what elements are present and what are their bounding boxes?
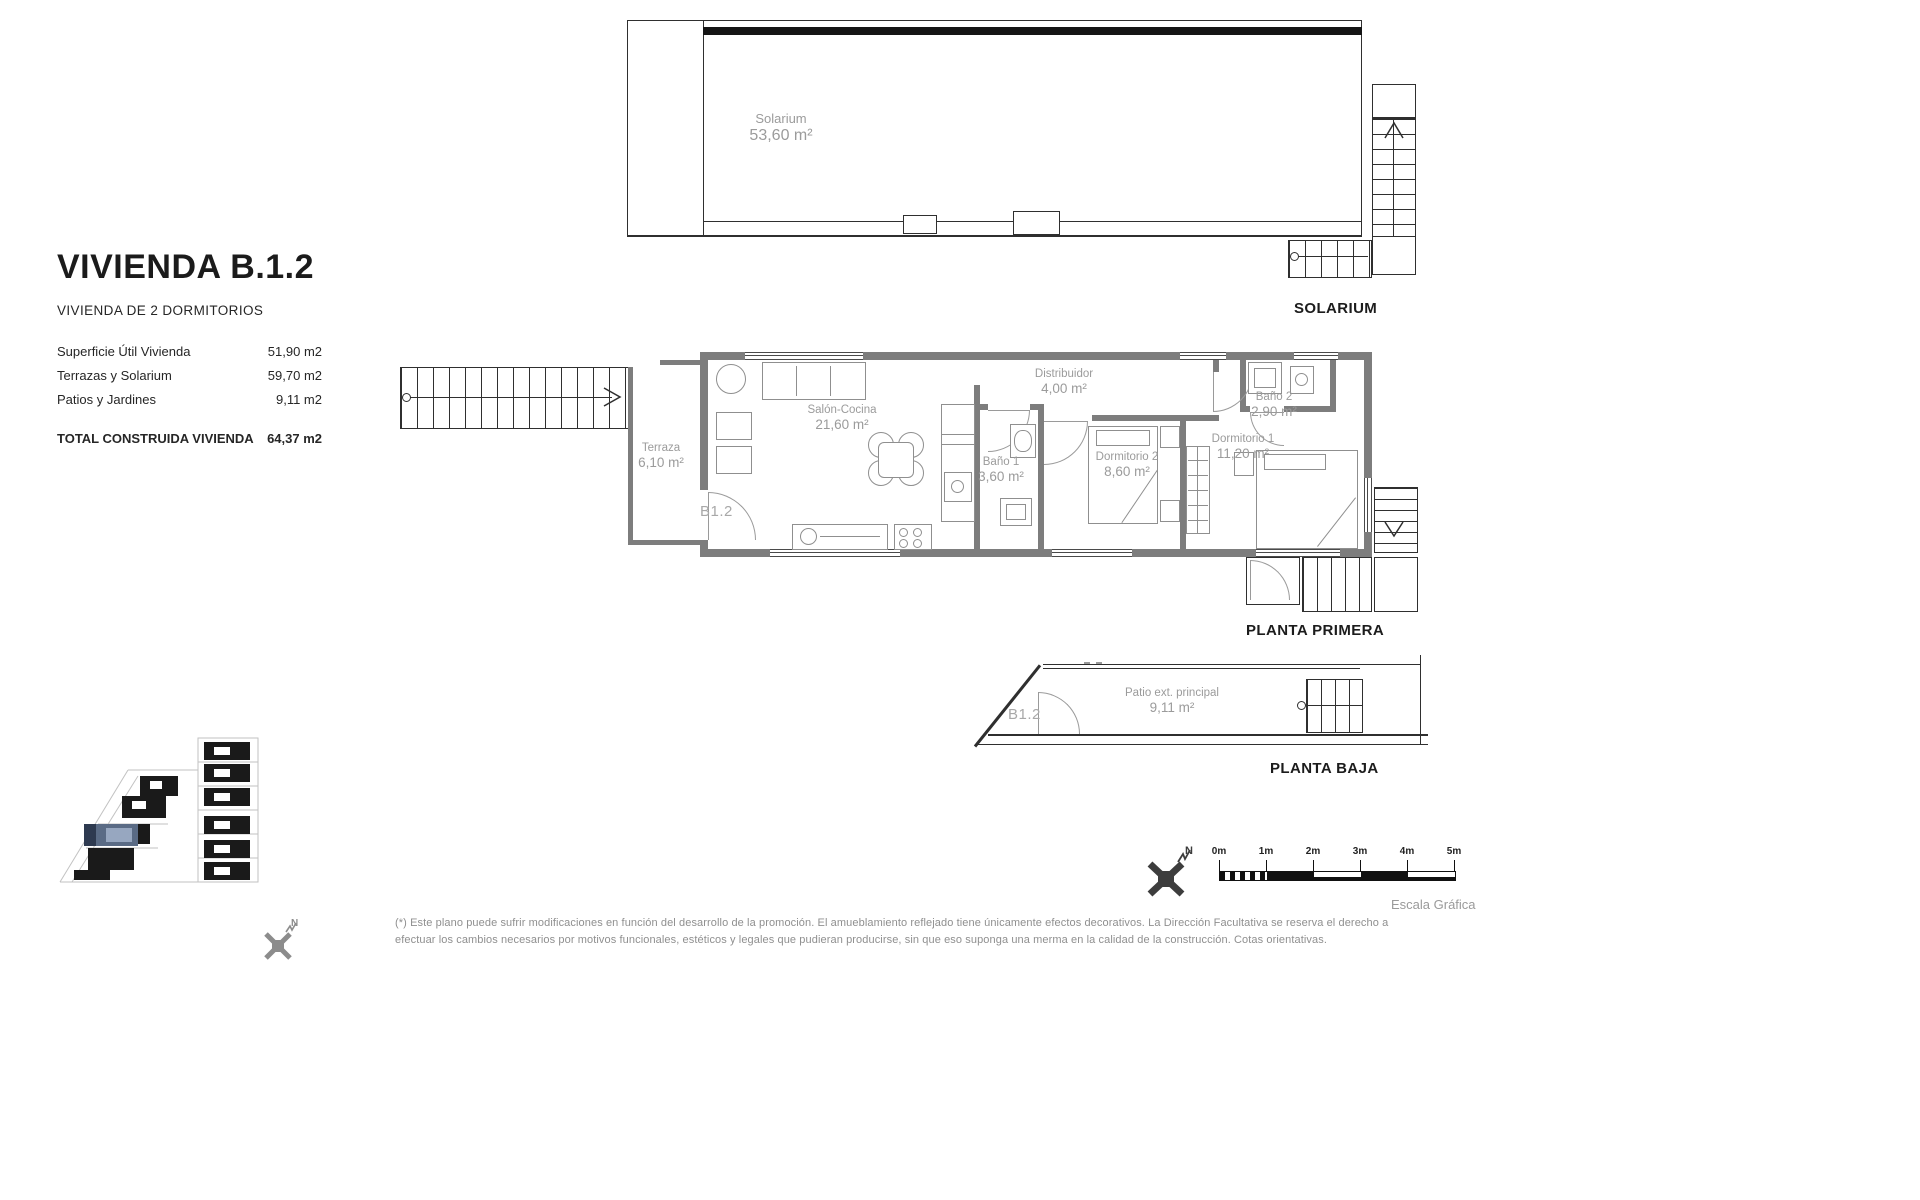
stair-start-circle (402, 393, 411, 402)
coffee-table (716, 364, 746, 394)
room-label-solarium: Solarium 53,60 m² (716, 112, 846, 145)
scale-segment (1314, 872, 1361, 880)
dimension-dot (1096, 662, 1102, 664)
room-area: 8,60 m² (1067, 464, 1187, 480)
door-arc-patio-entry (1038, 692, 1080, 734)
page-title: VIVIENDA B.1.2 (57, 248, 314, 287)
stair-centerline (1306, 705, 1363, 706)
armchair (716, 446, 752, 474)
area-row-value: 59,70 m2 (268, 368, 322, 383)
scale-tick (1313, 860, 1314, 871)
compass-rose-large: N (1142, 842, 1200, 902)
wall-segment (1330, 360, 1336, 412)
wall-segment (1213, 360, 1219, 372)
room-area: 21,60 m² (772, 417, 912, 433)
scale-tick (1360, 860, 1361, 871)
floor-plan-sheet: VIVIENDA B.1.2 VIVIENDA DE 2 DORMITORIOS… (0, 0, 1920, 1200)
room-label-terraza: Terraza 6,10 m² (628, 442, 694, 471)
toilet-bowl (1014, 430, 1032, 452)
room-area: 9,11 m² (1107, 700, 1237, 716)
hob-burner (899, 539, 908, 548)
area-row: Superficie Útil Vivienda 51,90 m2 (57, 344, 322, 359)
patio-top-line (1043, 664, 1420, 665)
window (1256, 549, 1340, 557)
patio-top-line (1043, 668, 1360, 669)
washbasin-bowl (1295, 373, 1308, 386)
site-plan-minimap (58, 736, 262, 886)
footnote-line-1: (*) Este plano puede sufrir modificacion… (395, 917, 1388, 929)
room-label-dormitorio2: Dormitorio 2 8,60 m² (1067, 451, 1187, 480)
staircase (400, 367, 630, 429)
north-label: N (291, 918, 298, 929)
stair-landing (1374, 557, 1418, 612)
room-name: Patio ext. principal (1107, 687, 1237, 700)
scale-bar-segments (1219, 871, 1456, 881)
room-name: Salón-Cocina (772, 404, 912, 417)
room-area: 11,20 m² (1183, 446, 1303, 462)
nightstand (1160, 426, 1180, 448)
room-area: 2,90 m² (1234, 404, 1314, 420)
washbasin-bowl (1006, 504, 1026, 520)
dimension-dot (1084, 662, 1090, 664)
patio-right-line (1420, 655, 1421, 745)
wall-segment (703, 27, 1362, 35)
scale-tick-label: 2m (1306, 846, 1320, 857)
patio-outer-line (975, 744, 1428, 745)
scale-tick-label: 4m (1400, 846, 1414, 857)
stair-direction-arrow (1383, 120, 1405, 140)
room-name: Dormitorio 2 (1067, 451, 1187, 464)
window (745, 352, 863, 360)
footnote-line-2: efectuar los cambios necesarios por moti… (395, 934, 1327, 946)
page-subtitle: VIVIENDA DE 2 DORMITORIOS (57, 303, 263, 318)
hob-burner (913, 539, 922, 548)
unit-entry-label: B1.2 (700, 503, 733, 520)
scale-tick (1266, 860, 1267, 871)
room-area: 4,00 m² (1000, 381, 1128, 397)
shower-tray (1254, 368, 1276, 388)
rooftop-box (903, 215, 937, 234)
staircase (1288, 240, 1372, 278)
wall-segment (700, 352, 708, 490)
scale-tick-label: 5m (1447, 846, 1461, 857)
stair-start-circle (1297, 701, 1306, 710)
total-row-label: TOTAL CONSTRUIDA VIVIENDA (57, 431, 254, 446)
nightstand (1160, 500, 1180, 522)
scale-tick (1407, 860, 1408, 871)
stair-direction-arrow (602, 386, 624, 410)
area-row-label: Patios y Jardines (57, 392, 156, 407)
room-label-patio: Patio ext. principal 9,11 m² (1107, 687, 1237, 716)
north-label: N (1185, 845, 1193, 857)
total-row: TOTAL CONSTRUIDA VIVIENDA 64,37 m2 (57, 431, 322, 446)
area-row: Terrazas y Solarium 59,70 m2 (57, 368, 322, 383)
armchair (716, 412, 752, 440)
total-row-value: 64,37 m2 (267, 431, 322, 446)
wall-segment (1092, 415, 1180, 421)
kitchen-sink-bowl (951, 480, 964, 493)
wall-segment (628, 540, 705, 545)
hob-burner (913, 528, 922, 537)
patio-bottom-wall (988, 734, 1428, 736)
window (1180, 352, 1226, 360)
unit-entry-label: B1.2 (1008, 706, 1041, 723)
staircase (1306, 679, 1363, 733)
room-label-distribuidor: Distribuidor 4,00 m² (1000, 368, 1128, 397)
wardrobe-shelf-line (1188, 475, 1208, 476)
caption-solarium: SOLARIUM (1294, 300, 1377, 317)
caption-planta-primera: PLANTA PRIMERA (1246, 622, 1384, 639)
room-name: Solarium (716, 112, 846, 127)
room-name: Baño 1 (966, 456, 1036, 469)
area-row: Patios y Jardines 9,11 m2 (57, 392, 322, 407)
wardrobe-shelf-line (1188, 505, 1208, 506)
room-area: 3,60 m² (966, 469, 1036, 485)
room-name: Terraza (628, 442, 694, 455)
kitchen-counter-line (820, 536, 880, 537)
stair-centerline (1298, 256, 1368, 257)
room-label-salon-cocina: Salón-Cocina 21,60 m² (772, 404, 912, 433)
stair-centerline (404, 397, 612, 398)
pillow (1096, 430, 1150, 446)
scale-tick-label: 0m (1212, 846, 1226, 857)
caption-planta-baja: PLANTA BAJA (1270, 760, 1379, 777)
window (1052, 549, 1132, 557)
washing-machine (800, 528, 817, 545)
scale-segment (1361, 872, 1408, 880)
window (1294, 352, 1338, 360)
dining-table (878, 442, 914, 478)
scale-segment (1267, 872, 1314, 880)
scale-tick-label: 1m (1259, 846, 1273, 857)
scale-bar: 0m 1m 2m 3m 4m 5m (1219, 846, 1459, 886)
wall-segment (1180, 415, 1219, 421)
kitchen-counter-line (941, 444, 975, 445)
scale-tick (1454, 860, 1455, 871)
area-row-value: 9,11 m2 (276, 392, 322, 407)
room-area: 6,10 m² (628, 455, 694, 471)
staircase (1302, 557, 1372, 612)
room-name: Distribuidor (1000, 368, 1128, 381)
rooftop-box (1013, 211, 1060, 235)
compass-rose-small: N (258, 916, 302, 962)
wall-segment (700, 540, 708, 557)
window (1364, 478, 1372, 532)
stair-direction-arrow (1383, 520, 1405, 540)
area-row-label: Superficie Útil Vivienda (57, 344, 190, 359)
scale-segment (1220, 872, 1267, 880)
room-area: 53,60 m² (716, 127, 846, 145)
area-row-label: Terrazas y Solarium (57, 368, 172, 383)
wall-segment (1030, 404, 1038, 410)
wardrobe-shelf-line (1188, 490, 1208, 491)
room-label-dormitorio1: Dormitorio 1 11,20 m² (1183, 433, 1303, 462)
window (770, 549, 900, 557)
room-label-bano1: Baño 1 3,60 m² (966, 456, 1036, 485)
sofa-cushion-line (830, 366, 831, 396)
scale-segment (1408, 872, 1455, 880)
scale-tick (1219, 860, 1220, 871)
scale-tick-label: 3m (1353, 846, 1367, 857)
wall-segment (703, 20, 704, 237)
scale-caption: Escala Gráfica (1391, 897, 1476, 912)
room-name: Baño 2 (1234, 391, 1314, 404)
hob-burner (899, 528, 908, 537)
area-row-value: 51,90 m2 (268, 344, 322, 359)
wall-segment (980, 404, 988, 410)
wall-segment (660, 360, 700, 365)
sofa-cushion-line (796, 366, 797, 396)
wardrobe-shelf-line (1188, 520, 1208, 521)
room-name: Dormitorio 1 (1183, 433, 1303, 446)
room-label-bano2: Baño 2 2,90 m² (1234, 391, 1314, 420)
kitchen-counter-line (941, 434, 975, 435)
sofa (762, 362, 866, 400)
